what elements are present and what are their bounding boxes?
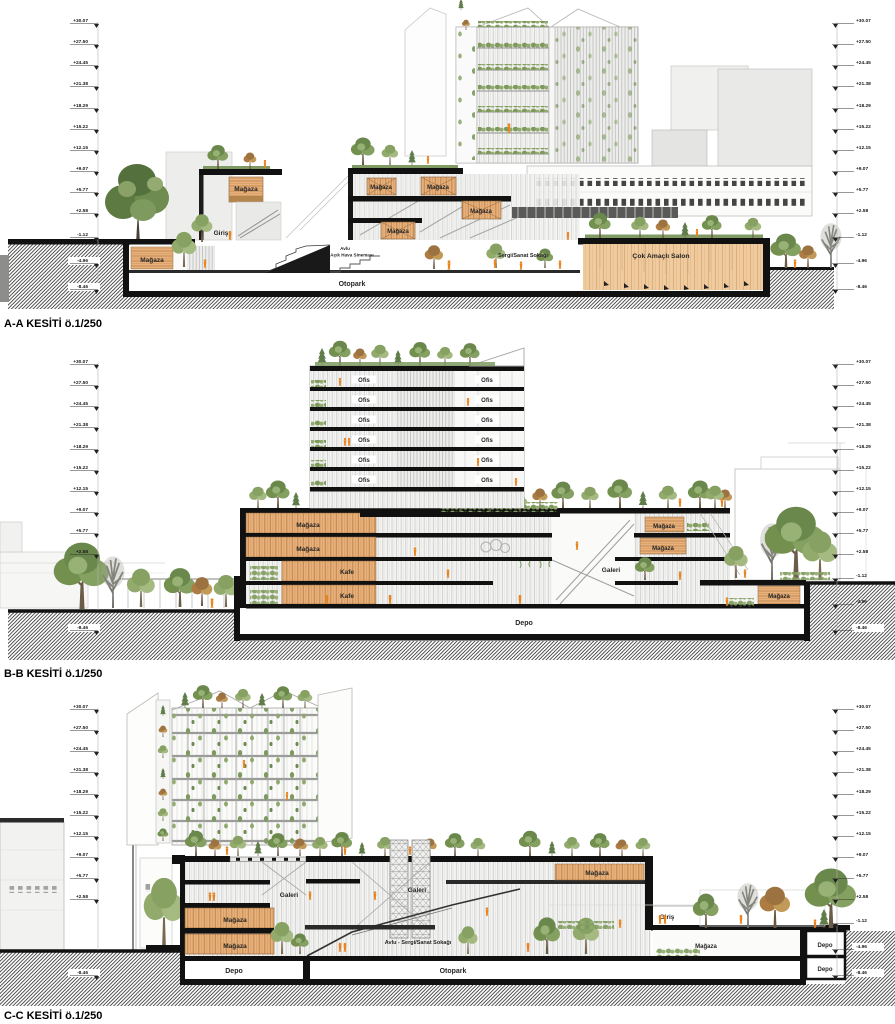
svg-text:+30.07: +30.07 [73,18,88,24]
svg-text:Ofis: Ofis [358,398,370,404]
svg-text:Mağaza: Mağaza [585,870,609,877]
svg-text:Mağaza: Mağaza [387,229,409,235]
svg-text:+15.22: +15.22 [856,465,871,471]
svg-text:+30.07: +30.07 [73,359,88,365]
svg-text:-8.46: -8.46 [77,284,88,290]
svg-text:+27.50: +27.50 [856,39,871,45]
svg-text:Mağaza: Mağaza [768,594,790,600]
svg-text:Ofis: Ofis [481,458,493,464]
svg-text:+5.77: +5.77 [76,873,88,879]
svg-text:-1.12: -1.12 [856,918,867,924]
svg-text:+18.29: +18.29 [73,789,88,795]
svg-text:+24.45: +24.45 [856,401,871,407]
svg-text:-8.46: -8.46 [856,284,867,290]
svg-text:+5.77: +5.77 [856,187,868,193]
svg-text:Çok Amaçlı Salon: Çok Amaçlı Salon [632,253,689,260]
svg-text:Ofis: Ofis [481,438,493,444]
svg-text:Otopark: Otopark [339,281,366,288]
svg-text:+21.38: +21.38 [73,767,88,773]
svg-text:+21.38: +21.38 [856,422,871,428]
svg-text:Ofis: Ofis [481,398,493,404]
svg-text:+12.15: +12.15 [73,831,88,837]
svg-text:+5.77: +5.77 [856,873,868,879]
svg-text:+24.45: +24.45 [856,60,871,66]
svg-text:+15.22: +15.22 [856,810,871,816]
svg-text:Mağaza: Mağaza [223,917,247,924]
svg-text:+18.29: +18.29 [73,103,88,109]
svg-text:+18.29: +18.29 [856,103,871,109]
svg-text:+15.22: +15.22 [73,124,88,130]
svg-text:+15.22: +15.22 [73,810,88,816]
svg-text:Mağaza: Mağaza [140,257,164,264]
svg-text:Mağaza: Mağaza [370,185,392,191]
svg-text:Depo: Depo [225,968,243,975]
svg-text:+27.50: +27.50 [73,725,88,731]
svg-text:+18.29: +18.29 [73,444,88,450]
svg-text:+30.07: +30.07 [856,704,871,710]
svg-text:-4.96: -4.96 [77,258,88,264]
svg-text:-8.46: -8.46 [856,970,867,976]
svg-text:Giriş: Giriş [214,230,229,237]
svg-text:-1.12: -1.12 [856,573,867,579]
svg-text:-8.46: -8.46 [77,625,88,631]
svg-text:Mağaza: Mağaza [470,209,492,215]
svg-text:-1.12: -1.12 [856,232,867,238]
svg-text:-4.96: -4.96 [856,944,867,950]
svg-text:+27.50: +27.50 [73,39,88,45]
svg-text:+30.07: +30.07 [856,18,871,24]
svg-text:Sergi/Sanat Sokağı: Sergi/Sanat Sokağı [498,253,548,259]
svg-text:+9.07: +9.07 [76,507,88,513]
svg-text:-8.46: -8.46 [77,970,88,976]
svg-text:Otopark: Otopark [440,968,467,975]
svg-text:Ofis: Ofis [481,418,493,424]
svg-text:+12.15: +12.15 [856,145,871,151]
svg-text:+2.58: +2.58 [856,208,868,214]
svg-text:Depo: Depo [515,620,533,627]
svg-text:Galeri: Galeri [280,892,299,899]
svg-text:+21.38: +21.38 [856,81,871,87]
svg-text:-8.46: -8.46 [856,625,867,631]
svg-text:+24.45: +24.45 [73,60,88,66]
svg-text:+9.07: +9.07 [76,852,88,858]
svg-text:+24.45: +24.45 [856,746,871,752]
svg-text:Giriş: Giriş [660,914,675,921]
svg-text:+27.50: +27.50 [73,380,88,386]
svg-text:-4.96: -4.96 [856,258,867,264]
svg-text:+15.22: +15.22 [73,465,88,471]
svg-text:Ofis: Ofis [358,478,370,484]
svg-text:+12.15: +12.15 [73,145,88,151]
svg-text:-1.12: -1.12 [77,232,88,238]
svg-text:+18.29: +18.29 [856,789,871,795]
svg-text:C-C KESİTİ ö.1/250: C-C KESİTİ ö.1/250 [4,1009,102,1022]
svg-text:Mağaza: Mağaza [234,186,258,193]
svg-text:Ofis: Ofis [358,438,370,444]
svg-text:Ofis: Ofis [358,378,370,384]
svg-text:Avlu: Avlu [340,246,350,251]
svg-text:+21.38: +21.38 [856,767,871,773]
svg-text:Ofis: Ofis [481,378,493,384]
svg-text:Depo: Depo [818,967,833,973]
svg-text:Ofis: Ofis [481,478,493,484]
svg-text:-4.96: -4.96 [856,599,867,605]
svg-text:Kafe: Kafe [340,569,354,576]
svg-text:+21.38: +21.38 [73,422,88,428]
svg-text:+24.45: +24.45 [73,746,88,752]
svg-text:+2.58: +2.58 [76,208,88,214]
svg-text:Mağaza: Mağaza [652,546,674,552]
svg-text:+9.07: +9.07 [856,852,868,858]
svg-text:Mağaza: Mağaza [223,943,247,950]
svg-text:Ofis: Ofis [358,418,370,424]
svg-text:+30.07: +30.07 [856,359,871,365]
svg-text:Depo: Depo [818,943,833,949]
svg-text:Açık Hava Sineması: Açık Hava Sineması [330,253,373,258]
svg-text:Mağaza: Mağaza [296,522,320,529]
svg-text:+2.58: +2.58 [856,894,868,900]
svg-text:+5.77: +5.77 [856,528,868,534]
svg-text:+12.15: +12.15 [856,831,871,837]
svg-text:+27.50: +27.50 [856,380,871,386]
svg-text:Mağaza: Mağaza [427,185,449,191]
svg-text:Ofis: Ofis [358,458,370,464]
svg-text:+2.58: +2.58 [856,549,868,555]
svg-text:+5.77: +5.77 [76,187,88,193]
svg-text:A-A KESİTİ ö.1/250: A-A KESİTİ ö.1/250 [4,317,102,330]
svg-text:+21.38: +21.38 [73,81,88,87]
svg-text:+2.58: +2.58 [76,549,88,555]
svg-text:+24.45: +24.45 [73,401,88,407]
svg-text:+9.07: +9.07 [856,166,868,172]
svg-text:+12.15: +12.15 [73,486,88,492]
svg-text:Galeri: Galeri [602,567,621,574]
svg-text:B-B KESİTİ ö.1/250: B-B KESİTİ ö.1/250 [4,667,102,680]
svg-text:Galeri: Galeri [408,887,427,894]
svg-text:Mağaza: Mağaza [296,546,320,553]
svg-text:+9.07: +9.07 [856,507,868,513]
svg-text:+18.29: +18.29 [856,444,871,450]
svg-text:+12.15: +12.15 [856,486,871,492]
svg-text:+5.77: +5.77 [76,528,88,534]
svg-text:+9.07: +9.07 [76,166,88,172]
svg-text:+27.50: +27.50 [856,725,871,731]
svg-text:Mağaza: Mağaza [653,524,675,530]
svg-text:+30.07: +30.07 [73,704,88,710]
svg-text:Kafe: Kafe [340,593,354,600]
svg-text:+2.58: +2.58 [76,894,88,900]
svg-text:+15.22: +15.22 [856,124,871,130]
svg-text:Avlu - Sergi/Sanat Sokağı: Avlu - Sergi/Sanat Sokağı [385,940,452,946]
